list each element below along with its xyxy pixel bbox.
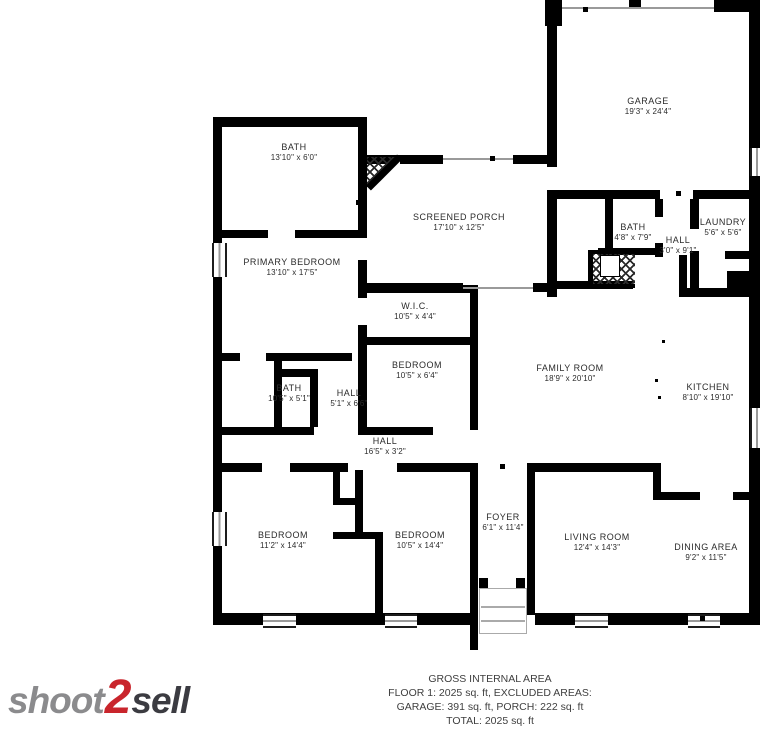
room-dims: 6'1" x 11'4" [482,523,523,532]
area-summary-title: GROSS INTERNAL AREA [335,672,645,686]
room-name: LIVING ROOM [564,532,630,542]
wall-segment [213,613,470,625]
room-dims: 4'8" x 7'9" [614,233,651,242]
dimension-tick [215,478,220,483]
room-name: HALL [659,235,696,245]
room-dims: 13'10" x 17'5" [243,268,340,277]
room-label-bath-top: BATH 13'10" x 6'0" [271,142,317,162]
room-name: LAUNDRY [700,217,746,227]
wall-segment [355,470,363,537]
room-label-foyer: FOYER 6'1" x 11'4" [482,512,523,532]
room-name: SCREENED PORCH [413,212,505,222]
dimension-tick [417,465,422,470]
room-label-screened-porch: SCREENED PORCH 17'10" x 12'5" [413,212,505,232]
room-dims: 17'10" x 12'5" [413,223,505,232]
room-dims: 19'3" x 24'4" [625,107,671,116]
reference-dot [658,396,661,399]
dimension-tick [753,520,758,525]
dimension-tick [500,464,505,469]
room-dims: 11'2" x 14'4" [258,541,308,550]
wall-segment [727,271,749,288]
room-name: BATH [614,222,651,232]
dimension-tick [700,616,705,621]
room-dims: 10'5" x 4'4" [394,312,436,321]
reference-dot [655,379,658,382]
wall-segment [655,199,663,217]
dimension-tick [620,191,625,196]
dimension-tick [330,616,335,621]
room-name: BATH [271,142,317,152]
floor-plan-canvas: GARAGE 19'3" x 24'4" BATH 13'10" x 6'0" … [0,0,760,732]
wall-segment [653,492,700,500]
wall-segment [733,492,749,500]
wall-segment [470,285,478,430]
area-summary-total: TOTAL: 2025 sq. ft [335,714,645,728]
wall-segment [557,190,660,199]
dimension-tick [753,332,758,337]
room-dims: 10'5" x 6'4" [392,371,442,380]
wall-segment [375,532,383,613]
wall-segment [470,463,478,650]
wall-segment [358,260,367,298]
wall-segment [605,199,613,249]
room-label-bath-garage: BATH 4'8" x 7'9" [614,222,651,242]
wall-segment [213,463,262,472]
wall-segment [714,0,760,12]
wall-segment [547,190,557,297]
room-label-hall-long: HALL 16'5" x 3'2" [364,436,406,456]
wall-segment [513,155,557,164]
room-name: BATH [268,383,310,393]
room-label-bath-left: BATH 10'5" x 5'1" [268,383,310,403]
room-dims: 8'10" x 19'10" [682,393,733,402]
wall-segment [679,288,749,297]
room-dims: 13'10" x 6'0" [271,153,317,162]
wall-segment [295,230,367,238]
wall-segment [693,190,749,199]
room-name: PRIMARY BEDROOM [243,257,340,267]
wall-segment [749,0,760,625]
room-label-kitchen: KITCHEN 8'10" x 19'10" [682,382,733,402]
window [575,614,608,628]
wall-segment [222,353,240,361]
area-summary-excluded: GARAGE: 391 sq. ft, PORCH: 222 sq. ft [335,700,645,714]
logo-text-two: 2 [105,683,131,713]
wall-segment [266,353,352,361]
window [212,243,227,277]
entry-landing [479,588,527,634]
dimension-tick [356,200,361,205]
area-summary-floor: FLOOR 1: 2025 sq. ft, EXCLUDED AREAS: [335,686,645,700]
dimension-tick [490,156,495,161]
wall-segment [358,117,367,238]
wall-segment [527,463,535,615]
wall-segment [535,613,760,625]
entry-step-line [481,620,525,622]
room-label-primary-bedroom: PRIMARY BEDROOM 13'10" x 17'5" [243,257,340,277]
room-name: FOYER [482,512,523,522]
logo-text-sell: sell [131,680,189,722]
wall-segment [213,117,222,625]
room-label-family-room: FAMILY ROOM 18'9" x 20'10" [536,363,603,383]
room-name: KITCHEN [682,382,733,392]
wall-segment [725,251,749,259]
wall-segment [222,230,268,238]
room-name: BEDROOM [395,530,445,540]
room-name: GARAGE [625,96,671,106]
dimension-tick [215,576,220,581]
room-label-bedroom-middle: BEDROOM 10'5" x 6'4" [392,360,442,380]
wall-segment [533,283,557,292]
room-name: DINING AREA [674,542,738,552]
room-label-wic: W.I.C. 10'5" x 4'4" [394,301,436,321]
wall-segment [310,369,318,427]
dimension-tick [450,616,455,621]
room-label-hall-garage: HALL 3'0" x 9'1" [659,235,696,255]
room-name: HALL [364,436,406,446]
window [750,408,760,448]
window [385,614,417,628]
dimension-tick [247,231,252,236]
dimension-tick [640,616,645,621]
wall-segment [397,463,478,472]
room-dims: 16'5" x 3'2" [364,447,406,456]
porch-screen-line [443,158,513,160]
room-label-bedroom-bottom-middle: BEDROOM 10'5" x 14'4" [395,530,445,550]
wall-segment [333,532,378,539]
wall-segment [690,199,699,229]
room-dims: 12'4" x 14'3" [564,543,630,552]
dimension-tick [215,338,220,343]
dimension-tick [753,232,758,237]
room-label-garage: GARAGE 19'3" x 24'4" [625,96,671,116]
window [750,148,760,176]
wall-segment [222,427,314,435]
dimension-tick [410,285,415,290]
window [263,614,296,628]
room-label-living-room: LIVING ROOM 12'4" x 14'3" [564,532,630,552]
room-name: HALL [330,388,367,398]
logo-text-shoot: shoot [8,680,104,722]
entry-step-line [481,606,525,608]
dimension-tick [676,191,681,196]
room-label-dining-area: DINING AREA 9'2" x 11'5" [674,542,738,562]
dimension-tick [420,338,425,343]
room-dims: 18'9" x 20'10" [536,374,603,383]
area-summary: GROSS INTERNAL AREA FLOOR 1: 2025 sq. ft… [335,672,645,732]
window [212,512,227,546]
room-dims: 5'6" x 5'6" [700,228,746,237]
wall-segment [358,337,470,345]
room-label-hall-small: HALL 5'1" x 6'6" [330,388,367,408]
wall-segment [547,0,557,167]
wall-segment [367,285,470,293]
dimension-tick [290,118,295,123]
dimension-tick [593,464,598,469]
room-name: BEDROOM [392,360,442,370]
room-dims: 10'5" x 14'4" [395,541,445,550]
room-dims: 5'1" x 6'6" [330,399,367,408]
room-dims: 9'2" x 11'5" [674,553,738,562]
reference-dot [662,340,665,343]
room-name: W.I.C. [394,301,436,311]
room-name: BEDROOM [258,530,308,540]
dimension-tick [215,158,220,163]
room-dims: 3'0" x 9'1" [659,246,696,255]
room-label-laundry: LAUNDRY 5'6" x 5'6" [700,217,746,237]
dimension-tick [583,7,588,12]
wall-segment [282,369,310,377]
dimension-tick [753,60,758,65]
dimension-tick [551,101,556,106]
shoot2sell-logo: shoot 2 sell [8,680,189,722]
room-dims: 10'5" x 5'1" [268,394,310,403]
water-heater-box [600,255,620,277]
room-label-bedroom-bottom-left: BEDROOM 11'2" x 14'4" [258,530,308,550]
room-name: FAMILY ROOM [536,363,603,373]
wall-segment [358,427,433,435]
porch-screen-line [463,287,533,289]
